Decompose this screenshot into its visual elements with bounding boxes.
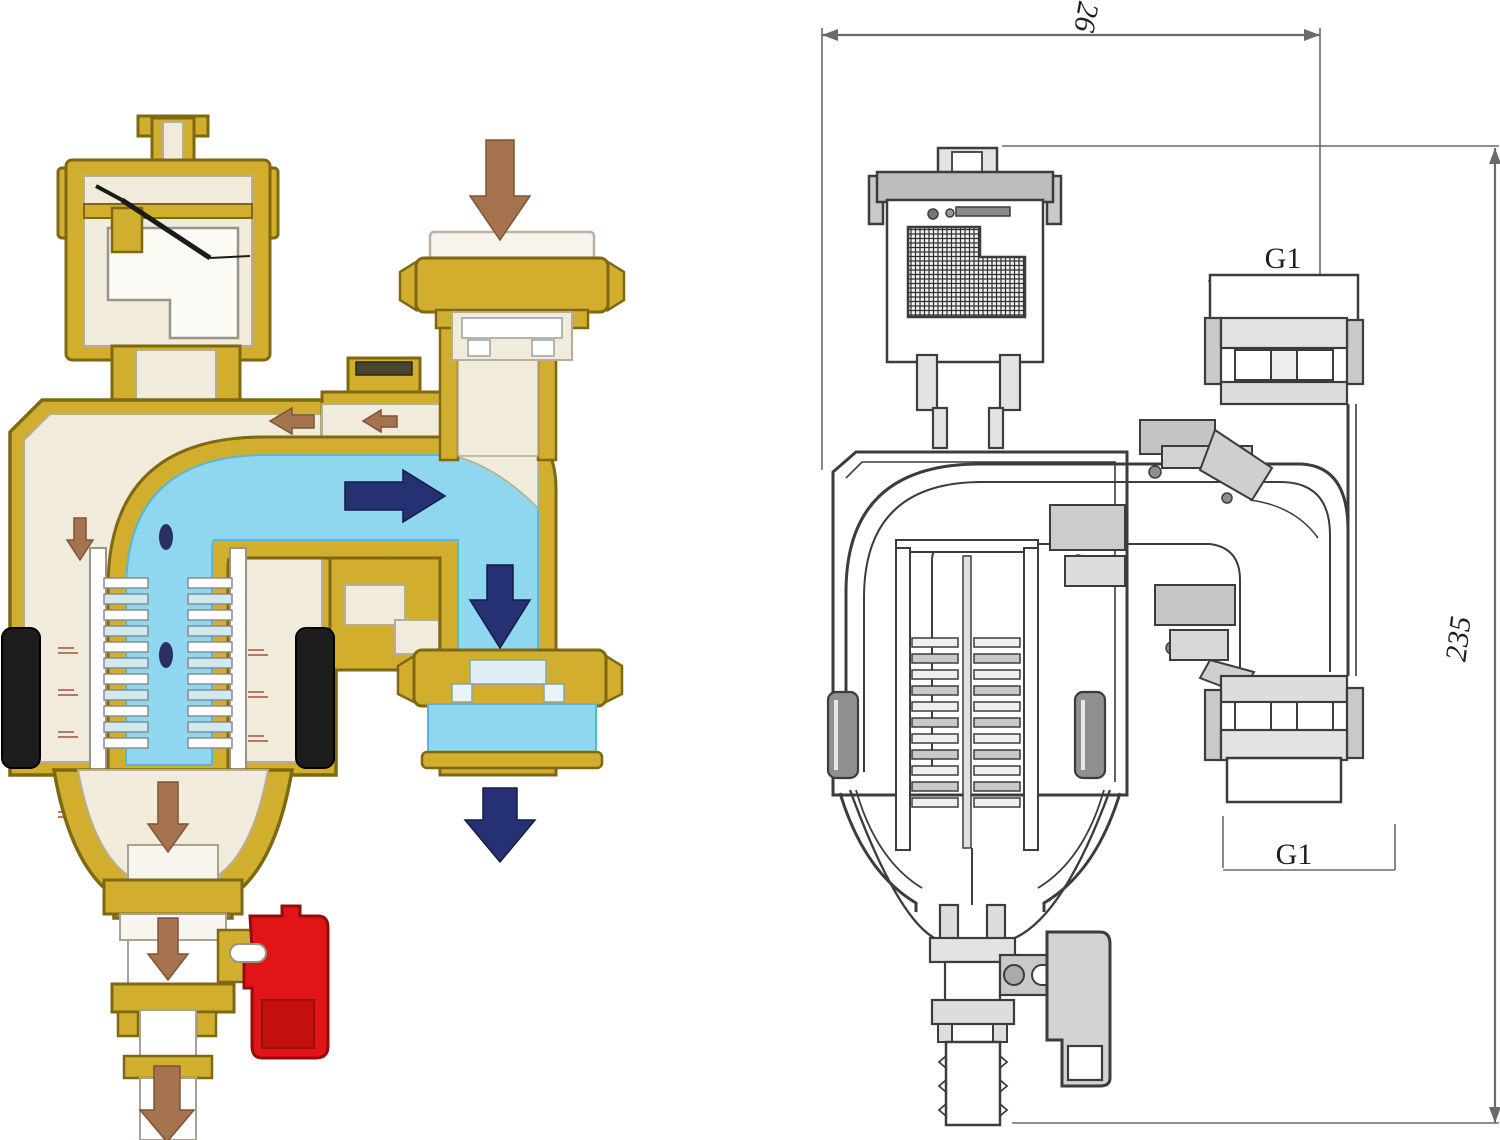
air-vent-section xyxy=(58,116,278,360)
outlet-insert xyxy=(470,660,546,684)
drain-nut xyxy=(104,880,242,914)
inlet-insert xyxy=(462,318,562,338)
right-technical-drawing: 126 235 G1 G1 xyxy=(650,0,1500,1140)
drain-fitting xyxy=(112,984,234,1012)
magnet-right xyxy=(296,628,334,768)
width-dimension-label: 126 xyxy=(1067,0,1107,35)
inlet-ear-right xyxy=(608,262,624,310)
outlet-bore-water xyxy=(428,704,596,756)
drawn-bottom-port xyxy=(1227,758,1341,802)
bowl-drain-section xyxy=(54,770,328,1140)
drawn-magnet-right xyxy=(1075,692,1105,778)
outlet-union xyxy=(398,650,622,768)
inlet-ear-left xyxy=(400,262,416,310)
inlet-arrow-icon xyxy=(470,140,530,240)
dirt-particle-icon xyxy=(159,642,173,668)
magnet-left xyxy=(2,628,40,768)
height-dimension-label: 235 xyxy=(1439,614,1477,663)
vent-valve-block xyxy=(112,208,142,252)
top-port-label: G1 xyxy=(1265,242,1302,275)
outlet-seal-right xyxy=(544,684,564,702)
drawn-top-port xyxy=(1210,275,1358,321)
brand-plate xyxy=(356,362,412,375)
left-cutaway-illustration xyxy=(0,0,650,1140)
drawn-bowl-drain xyxy=(840,790,1120,1125)
vent-seat-bar xyxy=(84,204,252,218)
inlet-seal-left xyxy=(468,340,490,356)
diagram-stage: 126 235 G1 G1 xyxy=(0,0,1500,1140)
drawn-magnet-left xyxy=(828,692,858,778)
outlet-seal-left xyxy=(452,684,472,702)
drain-handle-panel xyxy=(262,1000,314,1048)
fitting-leg-right xyxy=(196,1012,216,1036)
handle-slot xyxy=(230,944,266,962)
drawn-unions xyxy=(1205,275,1363,802)
inlet-union xyxy=(400,232,624,360)
outlet-ear-right xyxy=(606,656,622,702)
dirt-particle-icon xyxy=(159,524,173,550)
fitting-leg-left xyxy=(118,1012,138,1036)
inlet-seal-right xyxy=(532,340,554,356)
drain-cylinder xyxy=(140,1010,196,1060)
inlet-nut xyxy=(416,258,608,312)
outlet-arrow-icon xyxy=(465,788,535,862)
vent-nipple-bore xyxy=(163,122,183,164)
bottom-port-label: G1 xyxy=(1276,838,1313,871)
outlet-lip xyxy=(422,752,602,768)
drawn-air-vent xyxy=(869,148,1061,448)
